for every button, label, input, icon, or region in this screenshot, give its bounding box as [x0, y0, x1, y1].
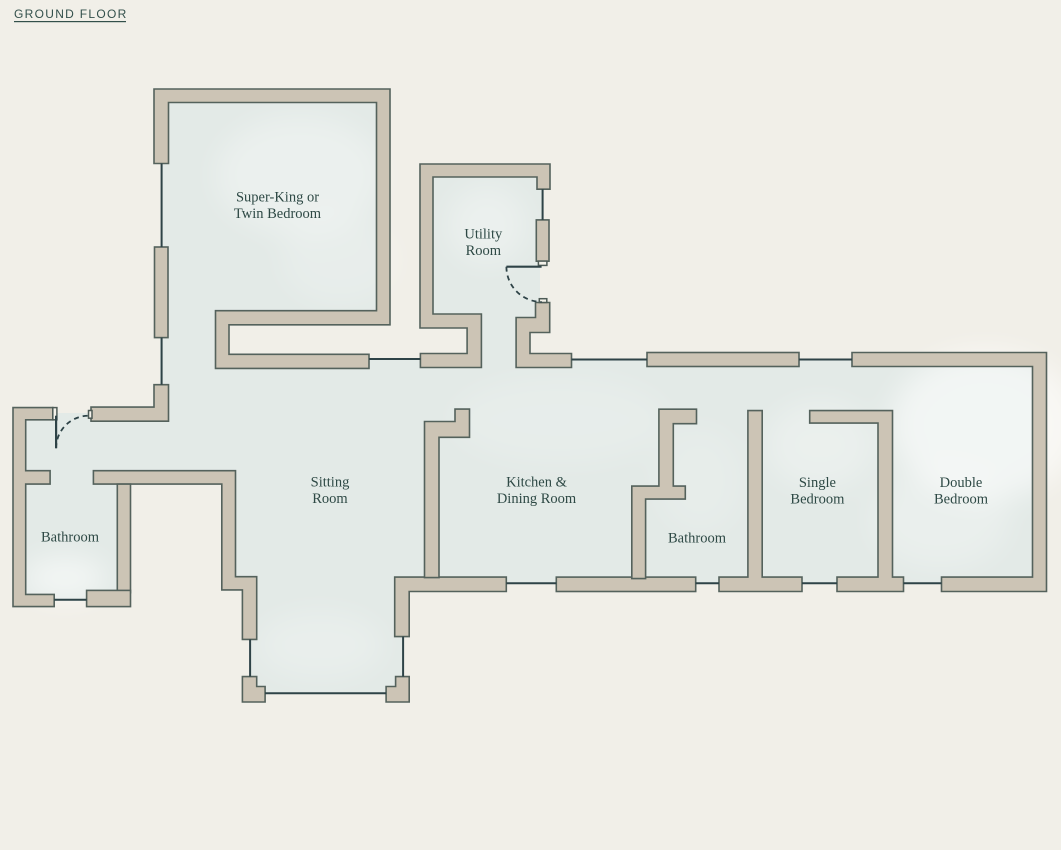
svg-text:Bathroom: Bathroom: [41, 529, 100, 545]
svg-text:Double: Double: [940, 475, 983, 491]
svg-text:Room: Room: [312, 491, 348, 507]
svg-text:Utility: Utility: [464, 226, 503, 242]
svg-text:Bathroom: Bathroom: [668, 530, 727, 546]
svg-text:Sitting: Sitting: [311, 474, 350, 490]
svg-text:Room: Room: [466, 243, 502, 259]
svg-text:Bedroom: Bedroom: [934, 491, 989, 507]
svg-text:Kitchen &: Kitchen &: [506, 474, 568, 490]
svg-text:Single: Single: [799, 475, 836, 491]
svg-text:Bedroom: Bedroom: [790, 491, 845, 507]
svg-text:Dining Room: Dining Room: [497, 491, 577, 507]
svg-text:Twin Bedroom: Twin Bedroom: [234, 206, 322, 222]
svg-text:Super-King or: Super-King or: [236, 190, 319, 206]
svg-text:GROUND FLOOR: GROUND FLOOR: [14, 7, 128, 21]
